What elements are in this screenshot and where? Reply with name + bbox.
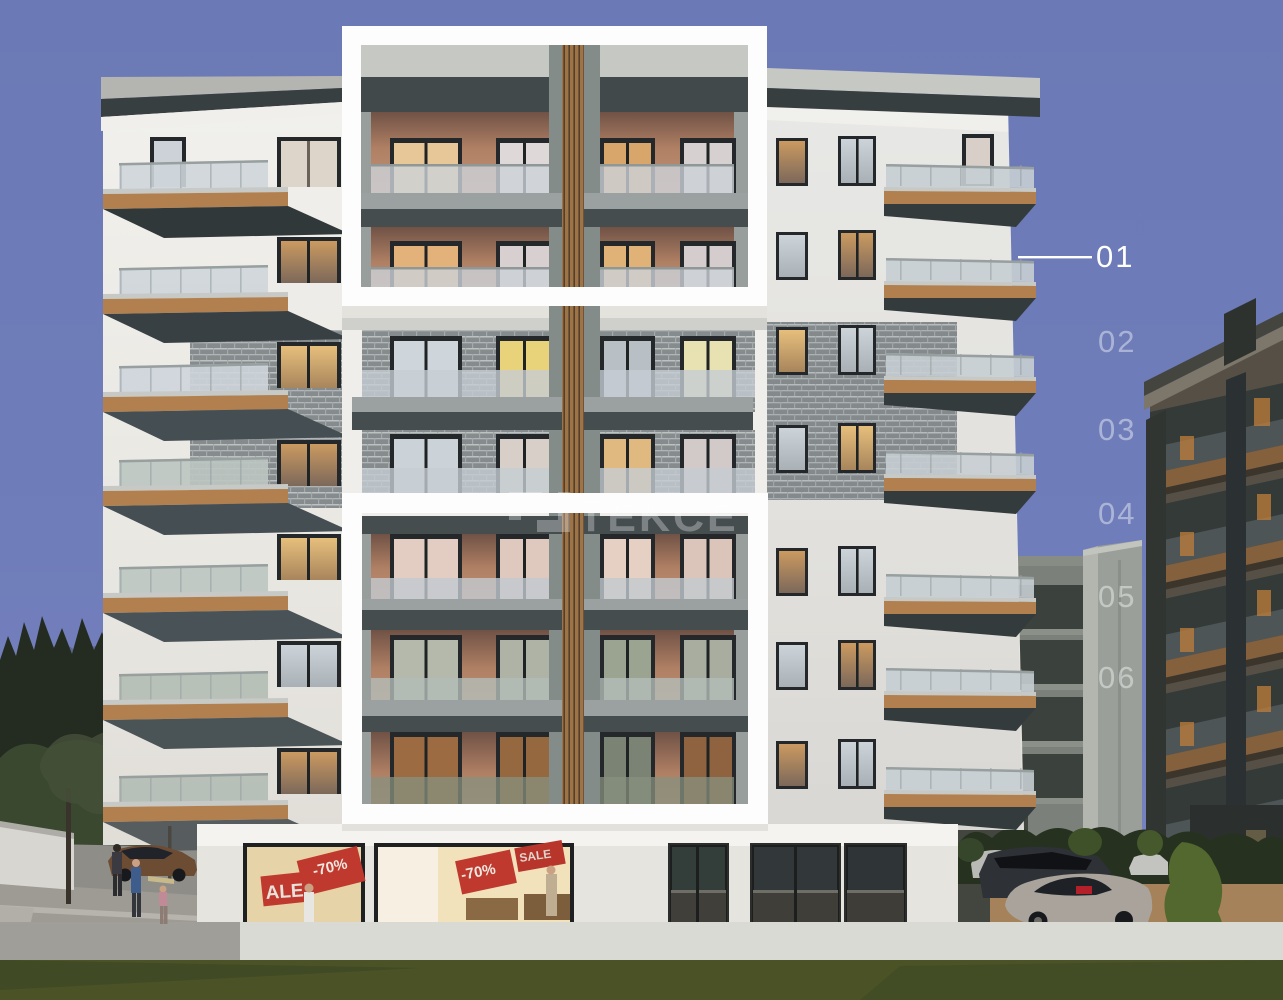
svg-text:TEKCE: TEKCE <box>578 493 739 541</box>
svg-text:02: 02 <box>1098 324 1136 359</box>
svg-text:03: 03 <box>1098 412 1136 447</box>
svg-text:05: 05 <box>1098 579 1136 614</box>
svg-text:04: 04 <box>1098 496 1136 531</box>
svg-text:06: 06 <box>1098 660 1136 695</box>
svg-text:ALE: ALE <box>265 880 304 904</box>
svg-text:01: 01 <box>1096 239 1134 274</box>
